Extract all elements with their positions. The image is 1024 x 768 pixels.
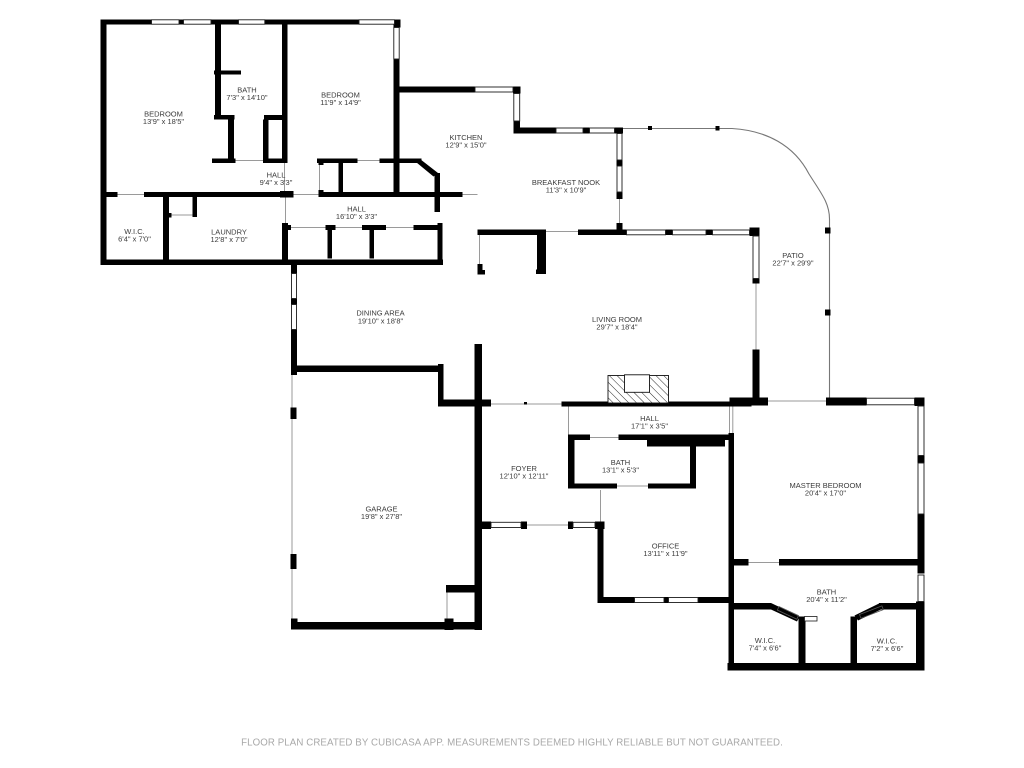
svg-text:12'9" x 15'0": 12'9" x 15'0"	[445, 140, 486, 149]
svg-text:9'4" x 3'3": 9'4" x 3'3"	[260, 178, 293, 187]
svg-text:16'10" x 3'3": 16'10" x 3'3"	[336, 212, 377, 221]
svg-text:FLOOR PLAN CREATED BY CUBICASA: FLOOR PLAN CREATED BY CUBICASA APP. MEAS…	[241, 738, 783, 749]
svg-text:11'3" x 10'9": 11'3" x 10'9"	[546, 185, 587, 194]
svg-text:20'4" x 17'0": 20'4" x 17'0"	[805, 488, 846, 497]
svg-text:12'10" x 12'11": 12'10" x 12'11"	[500, 471, 549, 480]
svg-text:20'4" x 11'2": 20'4" x 11'2"	[806, 595, 847, 604]
svg-text:17'1" x 3'5": 17'1" x 3'5"	[631, 422, 668, 431]
svg-text:11'9" x 14'9": 11'9" x 14'9"	[320, 98, 361, 107]
svg-text:7'2" x 6'6": 7'2" x 6'6"	[871, 644, 904, 653]
svg-text:7'3" x 14'10": 7'3" x 14'10"	[226, 93, 267, 102]
svg-text:13'11" x 11'9": 13'11" x 11'9"	[643, 549, 688, 558]
svg-text:13'1" x 5'3": 13'1" x 5'3"	[602, 465, 639, 474]
svg-text:22'7" x 29'9": 22'7" x 29'9"	[772, 258, 813, 267]
svg-text:7'4" x 6'6": 7'4" x 6'6"	[749, 643, 782, 652]
svg-text:12'8" x 7'0": 12'8" x 7'0"	[211, 235, 248, 244]
svg-text:19'10" x 18'8": 19'10" x 18'8"	[358, 317, 404, 326]
svg-text:13'9" x 18'5": 13'9" x 18'5"	[143, 117, 184, 126]
svg-text:19'8" x 27'8": 19'8" x 27'8"	[361, 512, 402, 521]
svg-text:29'7" x 18'4": 29'7" x 18'4"	[596, 323, 637, 332]
svg-text:6'4" x 7'0": 6'4" x 7'0"	[118, 235, 151, 244]
